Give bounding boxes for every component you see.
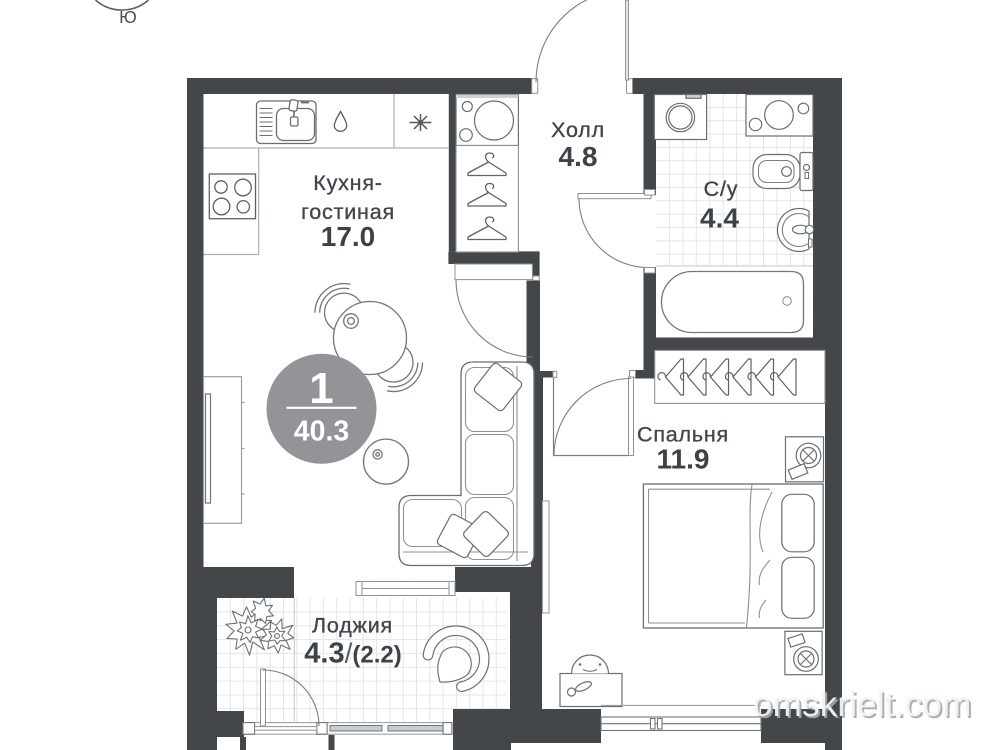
svg-text:4.3/(2.2): 4.3/(2.2) [304, 638, 401, 670]
svg-text:Лоджия: Лоджия [312, 614, 393, 638]
svg-text:omskrielt.com: omskrielt.com [753, 685, 971, 724]
svg-text:Холл: Холл [551, 118, 605, 142]
svg-text:17.0: 17.0 [321, 221, 376, 252]
svg-text:Кухня-: Кухня- [313, 171, 383, 195]
svg-text:1: 1 [309, 364, 333, 413]
svg-text:С/у: С/у [704, 177, 739, 201]
svg-text:4.4: 4.4 [700, 203, 739, 234]
svg-text:Ю: Ю [119, 7, 137, 27]
svg-text:4.8: 4.8 [559, 141, 598, 172]
svg-text:40.3: 40.3 [294, 416, 349, 448]
svg-text:11.9: 11.9 [657, 444, 710, 475]
